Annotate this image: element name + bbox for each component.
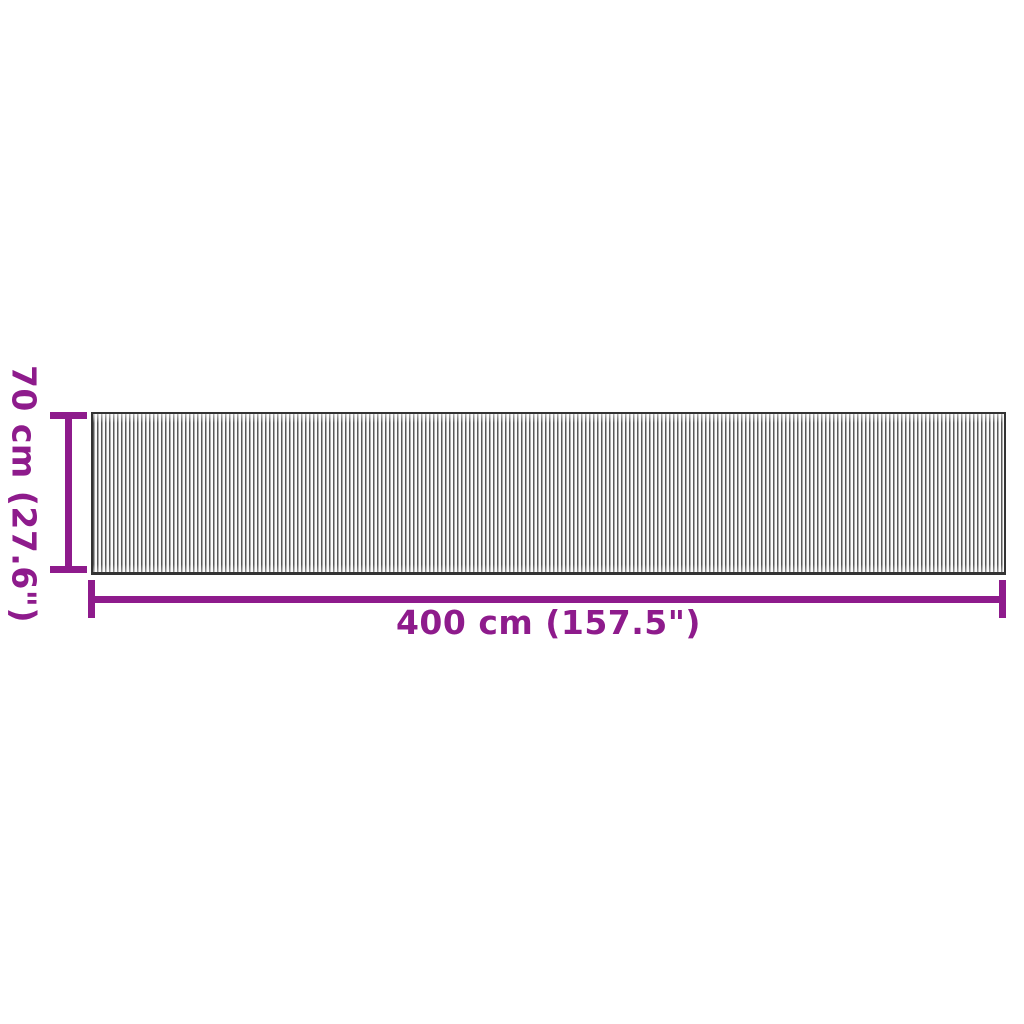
- height-dimension-line-bar: [65, 412, 72, 573]
- product-dimension-diagram: 70 cm (27.6") 400 cm (157.5"): [0, 0, 1024, 1024]
- rug-graphic: [91, 412, 1006, 575]
- width-dimension-line-bar: [88, 596, 1006, 603]
- width-dimension-label: 400 cm (157.5"): [91, 603, 1006, 642]
- height-dimension-line: [50, 412, 87, 573]
- height-dimension-label: 70 cm (27.6"): [5, 365, 44, 623]
- height-dimension-bottom-tick: [50, 566, 87, 573]
